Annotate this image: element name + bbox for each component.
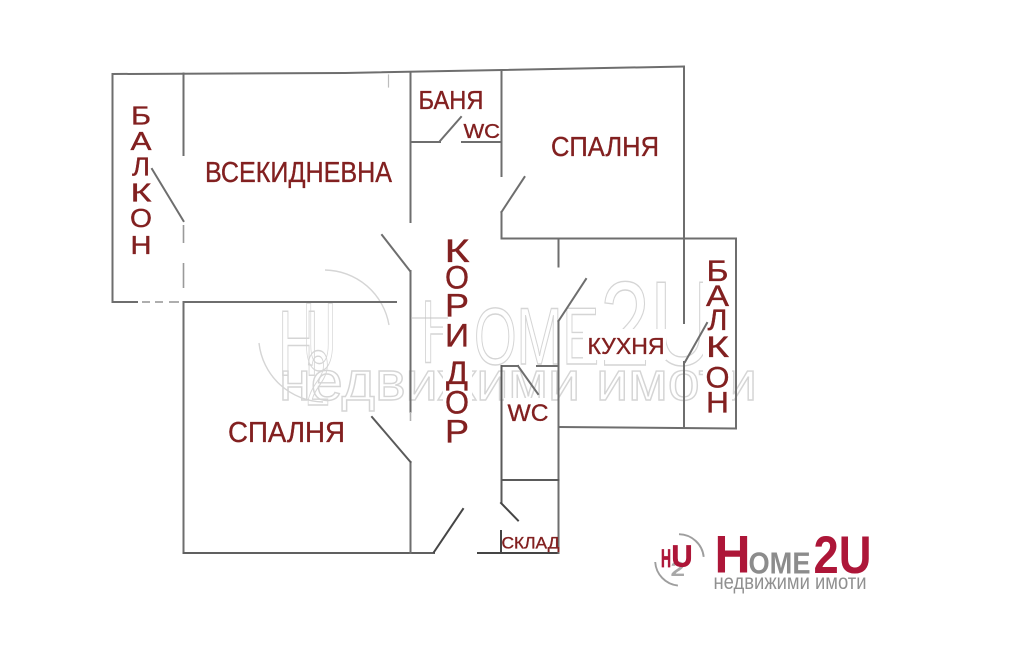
svg-text:WC: WC	[508, 400, 549, 427]
svg-text:КУХНЯ: КУХНЯ	[588, 333, 665, 359]
svg-text:Н: Н	[131, 230, 152, 260]
svg-text:И: И	[445, 318, 469, 354]
svg-text:H: H	[661, 545, 671, 573]
svg-text:СПАЛНЯ: СПАЛНЯ	[551, 131, 659, 162]
svg-text:WC: WC	[464, 121, 501, 143]
svg-text:БАНЯ: БАНЯ	[419, 85, 484, 115]
svg-text:недвижими имоти: недвижими имоти	[714, 570, 867, 594]
svg-text:ВСЕКИДНЕВНА: ВСЕКИДНЕВНА	[205, 157, 393, 189]
svg-text:О: О	[130, 203, 152, 233]
svg-text:Р: Р	[445, 414, 469, 450]
svg-text:Н: Н	[706, 387, 729, 420]
svg-text:К: К	[706, 331, 730, 364]
svg-text:U: U	[672, 539, 693, 574]
svg-text:СПАЛНЯ: СПАЛНЯ	[228, 417, 345, 449]
svg-text:СКЛАД: СКЛАД	[502, 533, 560, 552]
